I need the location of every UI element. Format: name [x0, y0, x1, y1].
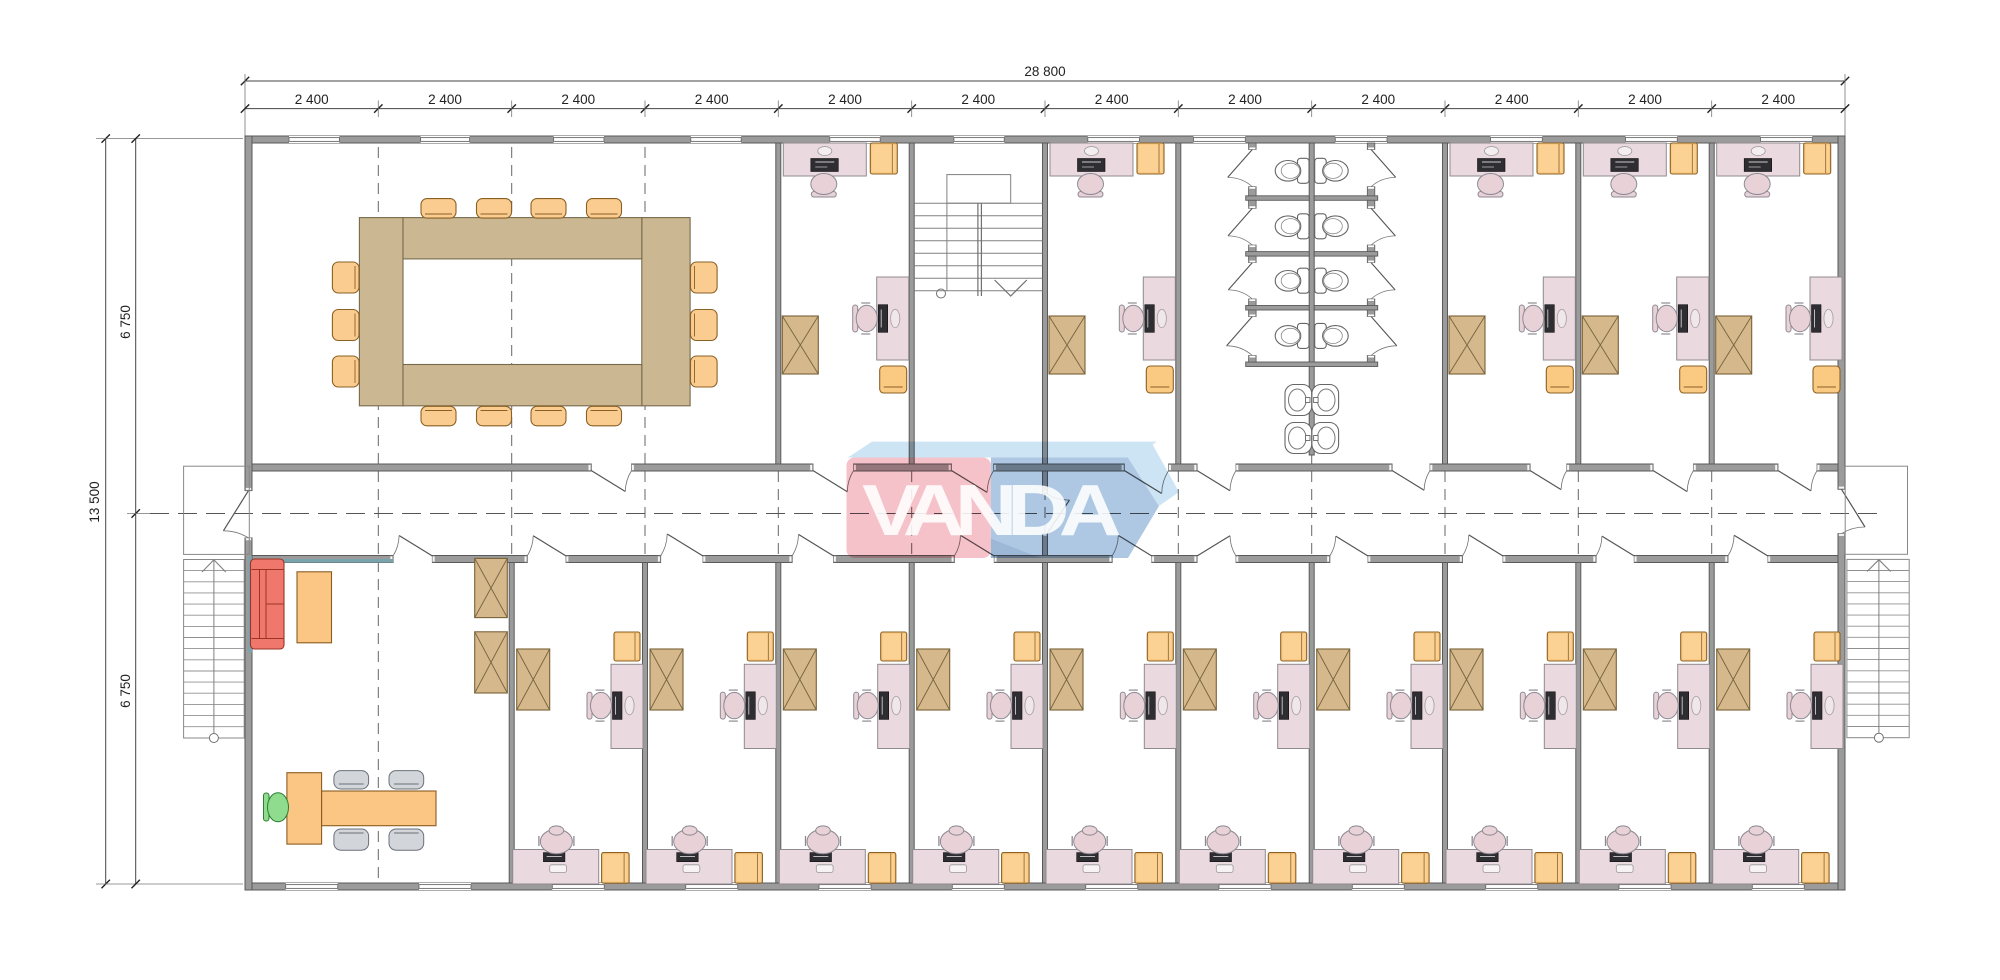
svg-text:VANDA: VANDA: [862, 470, 1120, 551]
svg-text:2 400: 2 400: [1228, 92, 1262, 107]
svg-text:6 750: 6 750: [118, 674, 133, 708]
svg-text:2 400: 2 400: [828, 92, 862, 107]
svg-text:2 400: 2 400: [1361, 92, 1395, 107]
svg-text:28 800: 28 800: [1024, 64, 1065, 79]
svg-text:2 400: 2 400: [961, 92, 995, 107]
svg-text:2 400: 2 400: [1495, 92, 1529, 107]
svg-text:13 500: 13 500: [87, 481, 102, 522]
svg-text:2 400: 2 400: [1628, 92, 1662, 107]
svg-text:2 400: 2 400: [695, 92, 729, 107]
svg-text:2 400: 2 400: [561, 92, 595, 107]
svg-text:2 400: 2 400: [1095, 92, 1129, 107]
svg-text:2 400: 2 400: [1761, 92, 1795, 107]
svg-text:2 400: 2 400: [428, 92, 462, 107]
svg-text:2 400: 2 400: [295, 92, 329, 107]
svg-text:6 750: 6 750: [118, 305, 133, 339]
